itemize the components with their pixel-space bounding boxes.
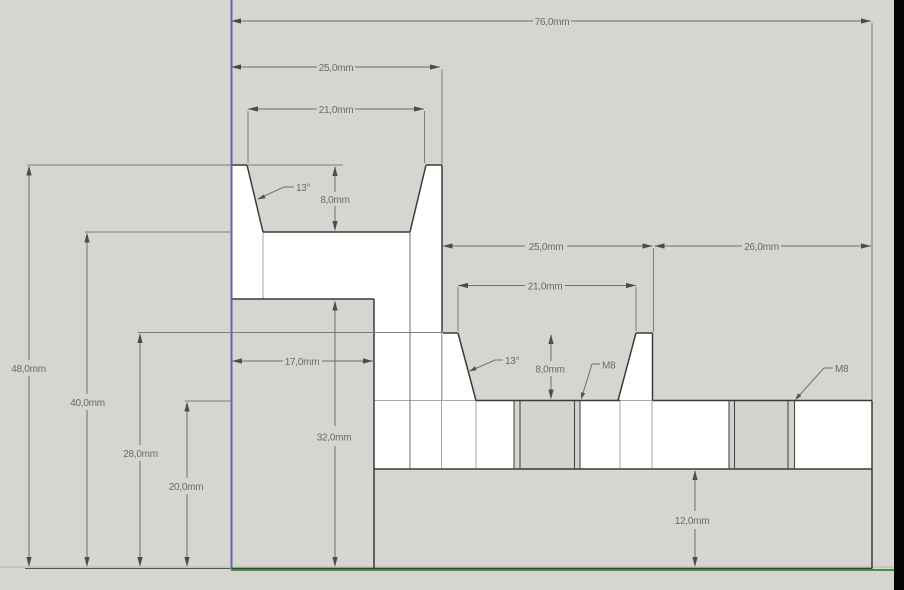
svg-text:13°: 13° (296, 183, 311, 194)
svg-text:40,0mm: 40,0mm (70, 398, 105, 409)
svg-text:28,0mm: 28,0mm (123, 449, 158, 460)
svg-text:21,0mm: 21,0mm (319, 105, 354, 116)
svg-text:8,0mm: 8,0mm (535, 365, 564, 376)
svg-text:M8: M8 (835, 364, 849, 375)
svg-text:13°: 13° (505, 356, 520, 367)
svg-text:21,0mm: 21,0mm (528, 282, 563, 293)
svg-text:76,0mm: 76,0mm (535, 17, 570, 28)
svg-text:M8: M8 (602, 361, 616, 372)
svg-text:25,0mm: 25,0mm (529, 242, 564, 253)
svg-text:17,0mm: 17,0mm (285, 357, 320, 368)
svg-text:8,0mm: 8,0mm (320, 195, 349, 206)
svg-text:26,0mm: 26,0mm (744, 242, 779, 253)
svg-text:48,0mm: 48,0mm (11, 364, 46, 375)
svg-text:25,0mm: 25,0mm (319, 63, 354, 74)
svg-text:32,0mm: 32,0mm (317, 433, 352, 444)
svg-text:12,0mm: 12,0mm (675, 516, 710, 527)
svg-text:20,0mm: 20,0mm (169, 482, 204, 493)
